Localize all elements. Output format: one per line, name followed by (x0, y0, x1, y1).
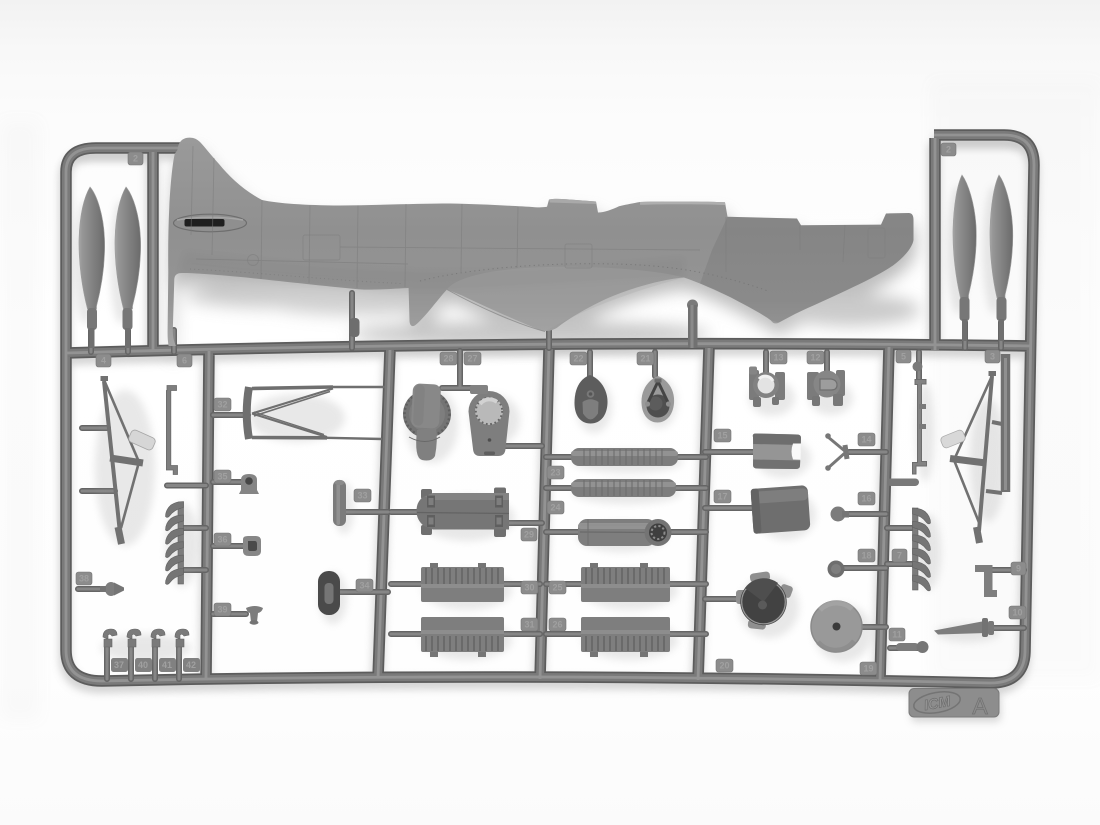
svg-text:A: A (972, 693, 988, 719)
svg-text:22: 22 (573, 354, 583, 364)
svg-text:9: 9 (1016, 564, 1021, 574)
svg-text:33: 33 (357, 491, 367, 501)
svg-text:12: 12 (810, 353, 820, 363)
svg-text:3: 3 (990, 352, 995, 362)
svg-text:7: 7 (897, 551, 902, 561)
svg-text:35: 35 (217, 472, 227, 482)
svg-text:2: 2 (133, 154, 138, 164)
svg-text:19: 19 (863, 664, 873, 674)
svg-text:2: 2 (946, 145, 951, 155)
svg-text:31: 31 (524, 620, 534, 630)
svg-text:26: 26 (552, 620, 562, 630)
svg-text:5: 5 (901, 352, 906, 362)
svg-text:11: 11 (892, 630, 902, 640)
svg-text:42: 42 (186, 660, 196, 670)
svg-text:17: 17 (717, 492, 727, 502)
svg-text:28: 28 (443, 354, 453, 364)
svg-text:34: 34 (359, 581, 369, 591)
svg-text:21: 21 (640, 354, 650, 364)
svg-text:36: 36 (217, 535, 227, 545)
svg-text:15: 15 (717, 431, 727, 441)
svg-text:37: 37 (114, 660, 124, 670)
svg-text:41: 41 (162, 660, 172, 670)
svg-text:27: 27 (467, 354, 477, 364)
svg-text:14: 14 (861, 435, 871, 445)
svg-text:24: 24 (550, 503, 560, 513)
svg-text:38: 38 (79, 574, 89, 584)
svg-text:13: 13 (773, 353, 783, 363)
svg-text:18: 18 (861, 551, 871, 561)
svg-text:16: 16 (861, 494, 871, 504)
svg-text:23: 23 (550, 468, 560, 478)
svg-text:40: 40 (138, 660, 148, 670)
svg-text:30: 30 (524, 583, 534, 593)
svg-text:25: 25 (552, 583, 562, 593)
svg-text:32: 32 (217, 400, 227, 410)
svg-text:20: 20 (719, 661, 729, 671)
svg-text:10: 10 (1012, 608, 1022, 618)
svg-text:39: 39 (217, 605, 227, 615)
svg-text:4: 4 (101, 356, 106, 366)
svg-text:29: 29 (524, 530, 534, 540)
svg-text:6: 6 (182, 356, 187, 366)
